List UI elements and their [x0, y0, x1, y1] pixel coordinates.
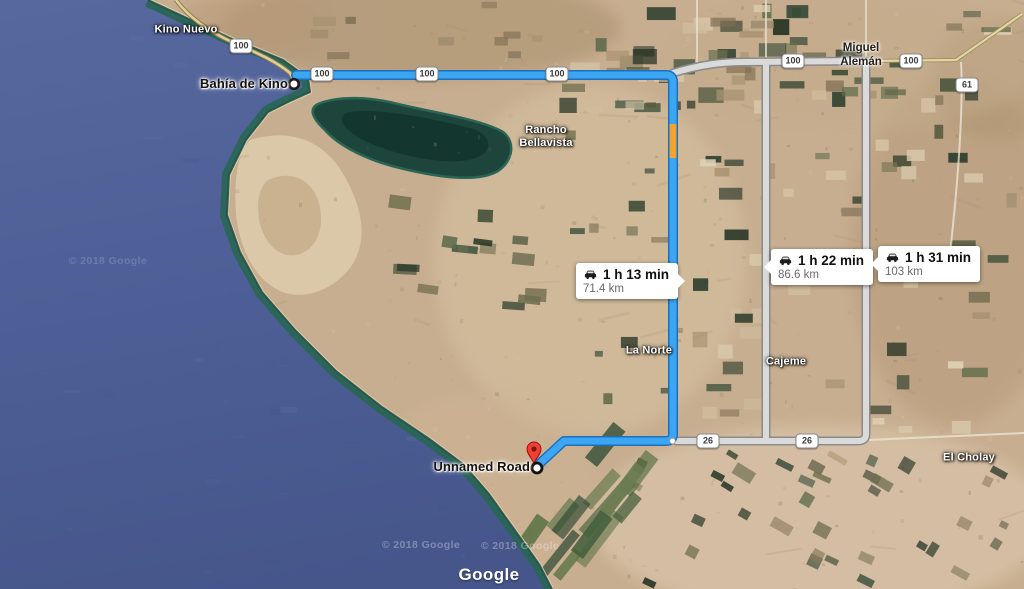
- route-main-time: 1 h 13 min: [603, 267, 669, 282]
- route-alt1-time: 1 h 22 min: [798, 253, 864, 268]
- route-option-alt2-bubble[interactable]: 1 h 31 min 103 km: [878, 246, 980, 282]
- google-maps-satellite-view: 100100100100100100612626 Kino NuevoBahía…: [0, 0, 1024, 589]
- route-waypoint-dot: [670, 438, 676, 444]
- google-logo[interactable]: Google: [459, 565, 520, 585]
- car-icon: [778, 255, 793, 267]
- route-main-distance: 71.4 km: [583, 283, 669, 295]
- origin-marker[interactable]: [289, 79, 299, 89]
- destination-marker[interactable]: [532, 463, 542, 473]
- satellite-map[interactable]: [0, 0, 1024, 589]
- route-alt2-time: 1 h 31 min: [905, 250, 971, 265]
- route-alt1-distance: 86.6 km: [778, 269, 864, 281]
- route-option-main-bubble[interactable]: 1 h 13 min 71.4 km: [576, 263, 678, 299]
- car-icon: [885, 252, 900, 264]
- route-alt2-distance: 103 km: [885, 266, 971, 278]
- route-option-alt1-bubble[interactable]: 1 h 22 min 86.6 km: [771, 249, 873, 285]
- car-icon: [583, 269, 598, 281]
